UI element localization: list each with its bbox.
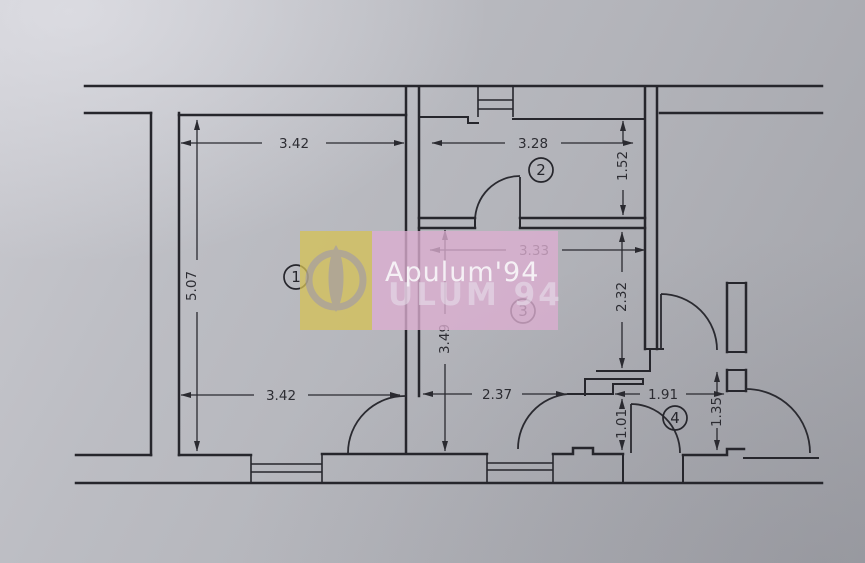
- door-swing-arc-balcony: [746, 389, 810, 453]
- watermark: ULUM 94 Apulum'94: [300, 231, 563, 330]
- dim-room2-height: 1.52: [615, 151, 631, 181]
- window-room1-bottom: [251, 455, 322, 483]
- room-1-number: 1: [291, 268, 301, 286]
- dim-corridor-height: 1.01: [614, 409, 630, 439]
- door-swing-arc-room1: [348, 396, 406, 453]
- floor-plan-photo: 3.42 5.07 3.42 3.28 1.52 3.33 2.32 3.49 …: [0, 0, 865, 563]
- dim-room3-height: 2.32: [614, 282, 630, 312]
- window-top: [478, 87, 513, 117]
- dim-entry-height: 1.35: [709, 397, 725, 427]
- door-swing-arc-room3: [661, 294, 717, 350]
- dim-corridor-width: 1.91: [648, 387, 678, 403]
- dim-room1-width-bottom: 3.42: [266, 388, 296, 404]
- watermark-brand-text: Apulum'94: [385, 257, 539, 288]
- dim-room2-width: 3.28: [518, 136, 548, 152]
- door-swing-arc-room2: [475, 176, 520, 221]
- room-2-number: 2: [536, 161, 546, 179]
- dim-room1-width-top: 3.42: [279, 136, 309, 152]
- dim-hall-width: 2.37: [482, 387, 512, 403]
- window-hall-bottom: [487, 454, 553, 483]
- door-swing-arc-entrance: [518, 394, 568, 449]
- room-4-number: 4: [670, 409, 680, 427]
- floor-plan-svg: 3.42 5.07 3.42 3.28 1.52 3.33 2.32 3.49 …: [0, 0, 865, 563]
- dim-room1-height: 5.07: [184, 271, 200, 301]
